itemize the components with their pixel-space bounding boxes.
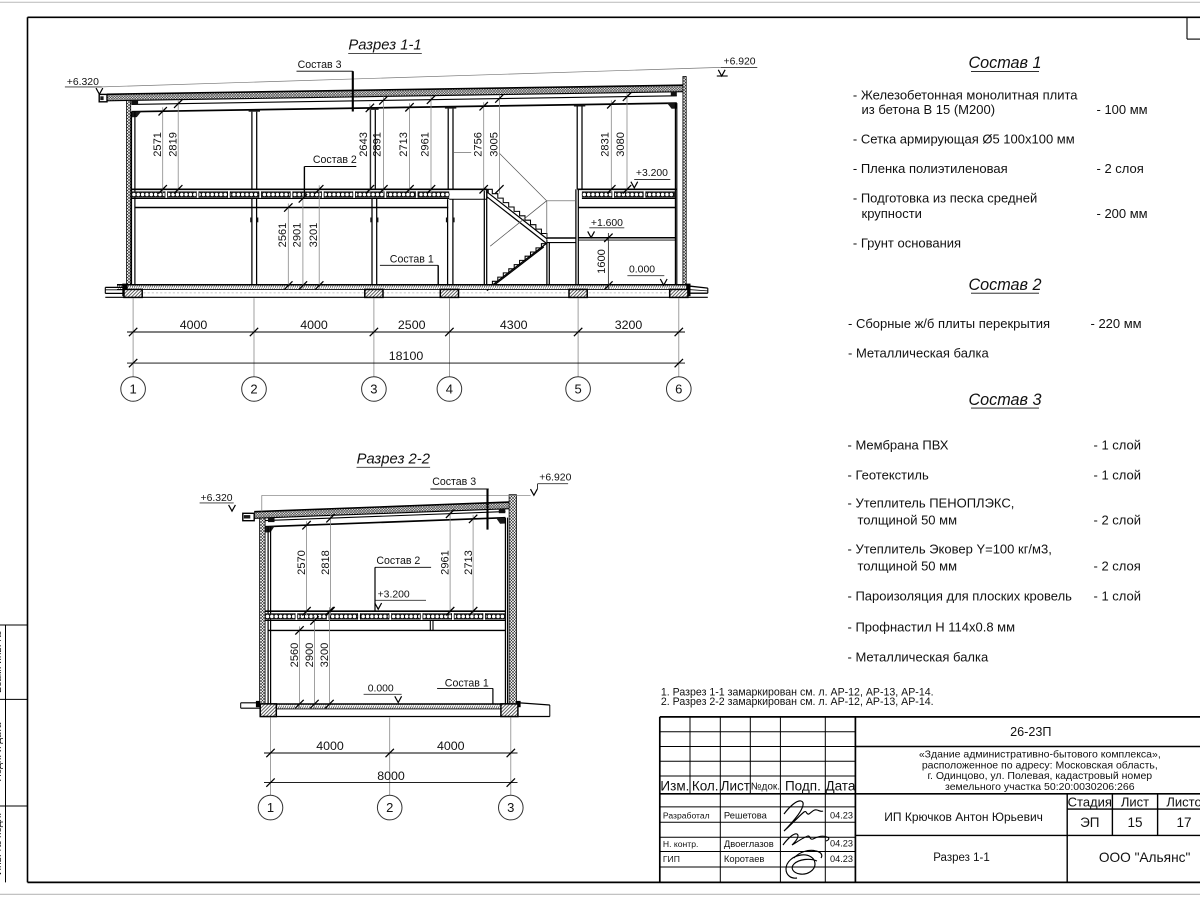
svg-text:2: 2 bbox=[250, 382, 257, 397]
svg-text:Двоеглазов: Двоеглазов bbox=[724, 838, 774, 849]
svg-text:- Пароизоляция для плоских кро: - Пароизоляция для плоских кровель bbox=[848, 589, 1073, 604]
svg-text:земельного участка 50:20:00302: земельного участка 50:20:0030206:266 bbox=[945, 781, 1135, 793]
svg-text:- Мембрана ПВХ: - Мембрана ПВХ bbox=[848, 438, 949, 453]
svg-text:2561: 2561 bbox=[277, 223, 289, 248]
svg-text:- 200 мм: - 200 мм bbox=[1097, 206, 1148, 221]
svg-text:2961: 2961 bbox=[420, 132, 432, 157]
svg-text:8000: 8000 bbox=[377, 769, 405, 783]
svg-text:- 1 слой: - 1 слой bbox=[1094, 467, 1142, 482]
svg-text:2643: 2643 bbox=[358, 132, 370, 157]
svg-text:Инв. № подл.: Инв. № подл. bbox=[0, 813, 4, 875]
svg-text:0.000: 0.000 bbox=[368, 684, 394, 695]
svg-text:Разрез 1-1: Разрез 1-1 bbox=[933, 852, 989, 864]
svg-text:Взам. инв. №: Взам. инв. № bbox=[0, 631, 4, 693]
svg-text:Лист: Лист bbox=[1121, 795, 1149, 810]
svg-text:Коротаев: Коротаев bbox=[724, 853, 765, 864]
svg-text:+3.200: +3.200 bbox=[378, 589, 410, 600]
svg-text:Состав 1: Состав 1 bbox=[968, 54, 1041, 72]
svg-text:- Сборные ж/б плиты перекрытия: - Сборные ж/б плиты перекрытия bbox=[848, 316, 1050, 331]
svg-text:Подп. и дата: Подп. и дата bbox=[0, 722, 4, 781]
svg-text:+6.920: +6.920 bbox=[724, 56, 756, 67]
svg-text:Дата: Дата bbox=[825, 779, 855, 794]
svg-text:Состав 2: Состав 2 bbox=[376, 555, 420, 567]
svg-text:04.23: 04.23 bbox=[830, 838, 853, 848]
svg-text:- Утеплитель Эковер Y=100 кг/м: - Утеплитель Эковер Y=100 кг/м3, bbox=[848, 542, 1052, 557]
svg-text:- Железобетонная монолитная п: - Железобетонная монолитная плита bbox=[853, 88, 1078, 103]
svg-text:- Грунт основания: - Грунт основания bbox=[853, 236, 961, 251]
svg-text:- Сетка армирующая Ø5 100х100: - Сетка армирующая Ø5 100х100 мм bbox=[853, 132, 1075, 147]
svg-text:2560: 2560 bbox=[289, 643, 301, 668]
svg-text:18100: 18100 bbox=[389, 349, 424, 363]
svg-text:2891: 2891 bbox=[372, 132, 384, 157]
svg-text:1: 1 bbox=[129, 382, 136, 397]
svg-text:4: 4 bbox=[446, 382, 453, 397]
svg-text:толщиной 50 мм: толщиной 50 мм bbox=[858, 513, 958, 528]
svg-text:Подп.: Подп. bbox=[785, 779, 821, 794]
svg-text:- 1 слой: - 1 слой bbox=[1094, 438, 1142, 453]
svg-text:+3.200: +3.200 bbox=[636, 168, 668, 179]
svg-text:Изм.: Изм. bbox=[660, 778, 689, 793]
svg-text:2819: 2819 bbox=[168, 132, 180, 157]
svg-text:3005: 3005 bbox=[488, 132, 500, 157]
svg-text:4300: 4300 bbox=[500, 318, 528, 332]
svg-text:Состав 3: Состав 3 bbox=[298, 59, 342, 71]
svg-text:3200: 3200 bbox=[615, 318, 643, 332]
svg-text:2: 2 bbox=[386, 800, 393, 815]
svg-text:2713: 2713 bbox=[398, 132, 410, 157]
svg-text:ЭП: ЭП bbox=[1080, 815, 1099, 830]
svg-text:Стадия: Стадия bbox=[1068, 795, 1112, 810]
svg-text:3201: 3201 bbox=[308, 223, 320, 248]
svg-text:15: 15 bbox=[1127, 815, 1142, 830]
svg-text:- Пленка полиэтиленовая: - Пленка полиэтиленовая bbox=[853, 161, 1008, 176]
svg-text:26-23П: 26-23П bbox=[1010, 725, 1051, 739]
svg-text:- Металлическая балка: - Металлическая балка bbox=[848, 345, 989, 360]
svg-text:Решетова: Решетова bbox=[724, 810, 768, 821]
svg-text:ИП Крючков Антон Юрьевич: ИП Крючков Антон Юрьевич bbox=[884, 810, 1043, 824]
svg-text:Кол.: Кол. bbox=[692, 779, 719, 794]
svg-text:2571: 2571 bbox=[152, 132, 164, 157]
svg-text:- Профнастил Н 114х0.8 мм: - Профнастил Н 114х0.8 мм bbox=[848, 619, 1016, 634]
svg-text:Разрез 1-1: Разрез 1-1 bbox=[348, 38, 421, 54]
svg-text:Состав 2: Состав 2 bbox=[968, 276, 1041, 294]
svg-text:- 100 мм: - 100 мм bbox=[1097, 102, 1148, 117]
svg-text:- 2 слоя: - 2 слоя bbox=[1097, 161, 1144, 176]
svg-text:2901: 2901 bbox=[292, 223, 304, 248]
svg-text:- 2 слой: - 2 слой bbox=[1094, 513, 1142, 528]
svg-text:2831: 2831 bbox=[600, 132, 612, 157]
svg-text:- 1 слой: - 1 слой bbox=[1094, 589, 1142, 604]
svg-text:+1.600: +1.600 bbox=[591, 218, 623, 229]
svg-text:2961: 2961 bbox=[440, 550, 452, 575]
svg-text:Н. контр.: Н. контр. bbox=[663, 839, 698, 849]
svg-text:4000: 4000 bbox=[300, 318, 328, 332]
svg-text:Состав 2: Состав 2 bbox=[313, 154, 357, 166]
svg-text:+6.920: +6.920 bbox=[539, 473, 571, 484]
svg-text:Состав 3: Состав 3 bbox=[968, 391, 1041, 409]
svg-text:3200: 3200 bbox=[319, 643, 331, 668]
svg-text:4000: 4000 bbox=[316, 739, 344, 753]
svg-text:крупности: крупности bbox=[862, 206, 922, 221]
svg-text:- Подготовка из песка средней: - Подготовка из песка средней bbox=[853, 191, 1037, 206]
svg-text:Разрез 2-2: Разрез 2-2 bbox=[357, 451, 431, 467]
svg-text:1600: 1600 bbox=[596, 249, 608, 274]
svg-text:04.23: 04.23 bbox=[830, 854, 853, 864]
svg-text:+6.320: +6.320 bbox=[201, 493, 233, 504]
svg-text:0.000: 0.000 bbox=[629, 265, 655, 276]
svg-text:№док.: №док. bbox=[751, 782, 780, 793]
svg-text:2818: 2818 bbox=[320, 550, 332, 575]
svg-text:1: 1 bbox=[267, 800, 274, 815]
svg-text:2500: 2500 bbox=[398, 318, 426, 332]
svg-text:2570: 2570 bbox=[296, 550, 308, 575]
svg-text:4000: 4000 bbox=[437, 739, 465, 753]
svg-text:- Геотекстиль: - Геотекстиль bbox=[848, 467, 929, 482]
svg-text:04.23: 04.23 bbox=[830, 810, 853, 820]
svg-text:ГИП: ГИП bbox=[663, 854, 680, 864]
svg-text:4000: 4000 bbox=[180, 318, 208, 332]
svg-text:3080: 3080 bbox=[615, 132, 627, 157]
svg-text:- 2 слоя: - 2 слоя bbox=[1094, 559, 1141, 574]
svg-text:Лист: Лист bbox=[721, 779, 750, 794]
svg-text:Разработал: Разработал bbox=[663, 811, 710, 821]
svg-text:из бетона В 15 (М200): из бетона В 15 (М200) bbox=[862, 102, 996, 117]
svg-text:2900: 2900 bbox=[304, 643, 316, 668]
svg-text:Состав 3: Состав 3 bbox=[432, 476, 476, 488]
svg-text:17: 17 bbox=[1176, 815, 1191, 830]
svg-text:3: 3 bbox=[370, 382, 377, 397]
svg-text:2. Разрез 2-2 замаркирован см.: 2. Разрез 2-2 замаркирован см. л. АР-12,… bbox=[661, 696, 934, 708]
svg-text:5: 5 bbox=[574, 382, 581, 397]
svg-text:6: 6 bbox=[675, 382, 682, 397]
svg-text:2713: 2713 bbox=[463, 550, 475, 575]
svg-text:- Утеплитель ПЕНОПЛЭКС,: - Утеплитель ПЕНОПЛЭКС, bbox=[848, 496, 1015, 511]
svg-text:ООО "Альянс": ООО "Альянс" bbox=[1099, 850, 1191, 865]
svg-text:толщиной 50 мм: толщиной 50 мм bbox=[858, 559, 958, 574]
svg-text:Состав 1: Состав 1 bbox=[445, 677, 489, 689]
svg-text:3: 3 bbox=[507, 800, 514, 815]
svg-text:- 220 мм: - 220 мм bbox=[1091, 316, 1142, 331]
svg-text:Состав 1: Состав 1 bbox=[390, 253, 434, 265]
svg-text:Листов: Листов bbox=[1166, 795, 1200, 810]
svg-text:- Металлическая балка: - Металлическая балка bbox=[848, 649, 989, 664]
svg-text:2756: 2756 bbox=[473, 132, 485, 157]
svg-text:+6.320: +6.320 bbox=[67, 77, 99, 88]
